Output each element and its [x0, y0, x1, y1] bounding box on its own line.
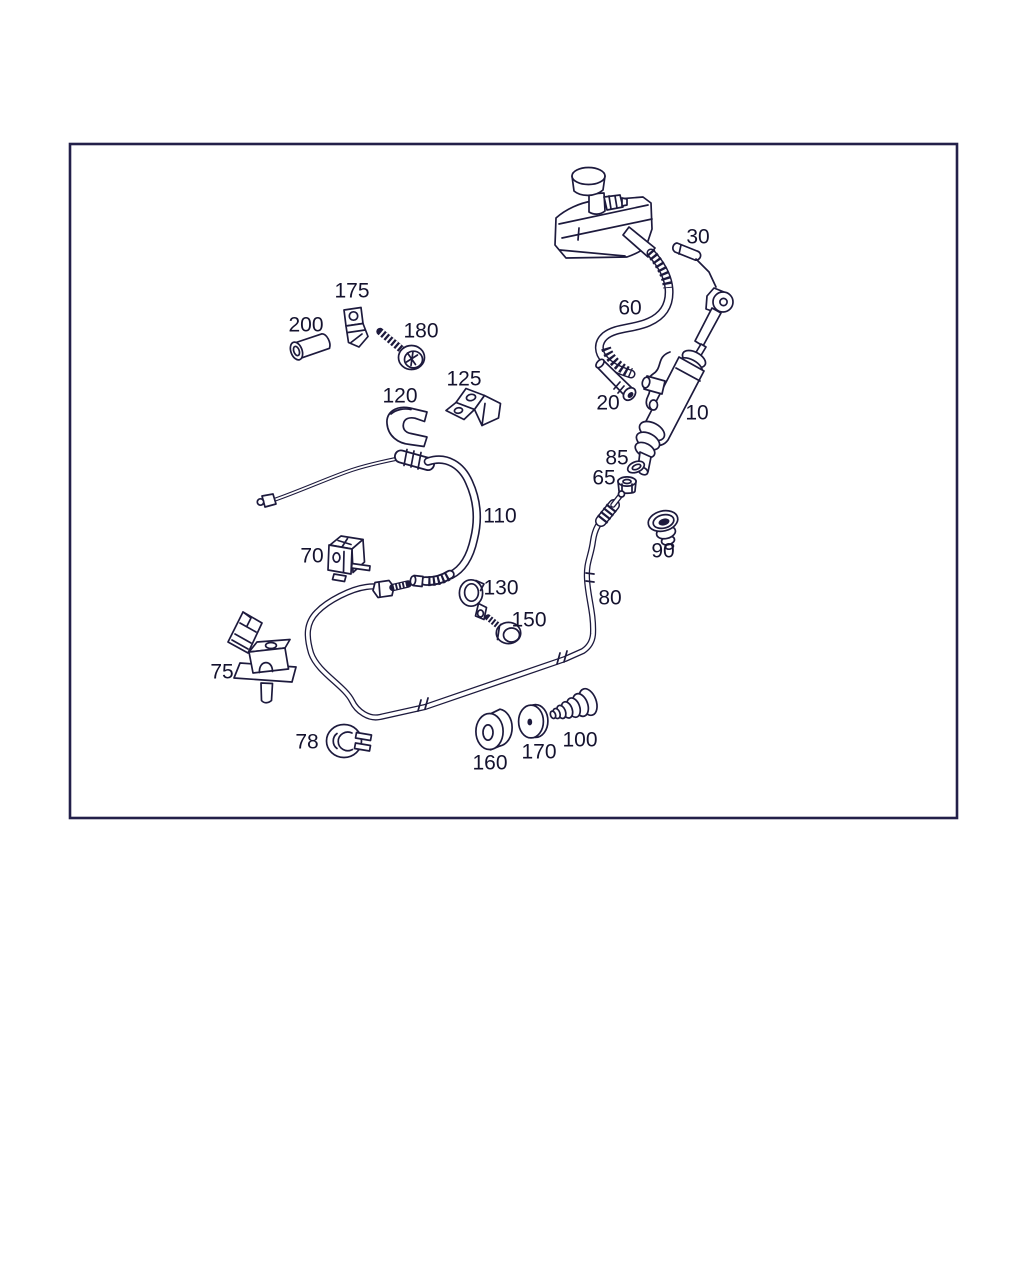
spacer-sleeve-drawing: [288, 334, 330, 362]
part-label-70: 70: [300, 545, 323, 568]
washer-disc-drawing: [519, 705, 548, 738]
holder-clip-drawing: [328, 536, 370, 582]
clip-plate-drawing: [344, 308, 368, 348]
grommet-drawing: [476, 709, 512, 750]
part-label-60: 60: [618, 297, 641, 320]
mounting-bracket-drawing: [228, 612, 296, 703]
fluid-reservoir-drawing: [555, 168, 655, 259]
part-label-65: 65: [592, 467, 615, 490]
rubber-boot-drawing: [549, 686, 600, 719]
p-clamp-drawing: [459, 580, 486, 620]
part-label-160: 160: [472, 752, 507, 775]
part-label-90: 90: [651, 540, 674, 563]
part-label-150: 150: [511, 609, 546, 632]
part-label-80: 80: [598, 587, 621, 610]
holder-bracket-drawing: [446, 389, 501, 426]
part-label-100: 100: [562, 729, 597, 752]
part-label-78: 78: [295, 731, 318, 754]
part-label-180: 180: [403, 320, 438, 343]
retaining-clip-drawing: [327, 725, 372, 758]
diagram-border: [70, 144, 957, 818]
part-label-200: 200: [288, 314, 323, 337]
part-label-110: 110: [483, 505, 516, 528]
pin-bolt-drawing: [673, 243, 716, 287]
part-label-120: 120: [382, 385, 417, 408]
part-label-10: 10: [685, 402, 708, 425]
master-cylinder-drawing: [633, 288, 733, 476]
part-label-75: 75: [210, 661, 233, 684]
document-page: 2001751801251203060201085651109070130801…: [0, 0, 1024, 1280]
parts-diagram: 2001751801251203060201085651109070130801…: [0, 0, 1024, 1280]
profile-clip-drawing: [387, 407, 427, 446]
part-label-20: 20: [596, 392, 619, 415]
diagram-artwork: [228, 168, 733, 758]
part-label-175: 175: [334, 280, 369, 303]
part-label-130: 130: [483, 577, 518, 600]
part-label-170: 170: [521, 741, 556, 764]
part-label-30: 30: [686, 226, 709, 249]
part-label-125: 125: [446, 368, 481, 391]
